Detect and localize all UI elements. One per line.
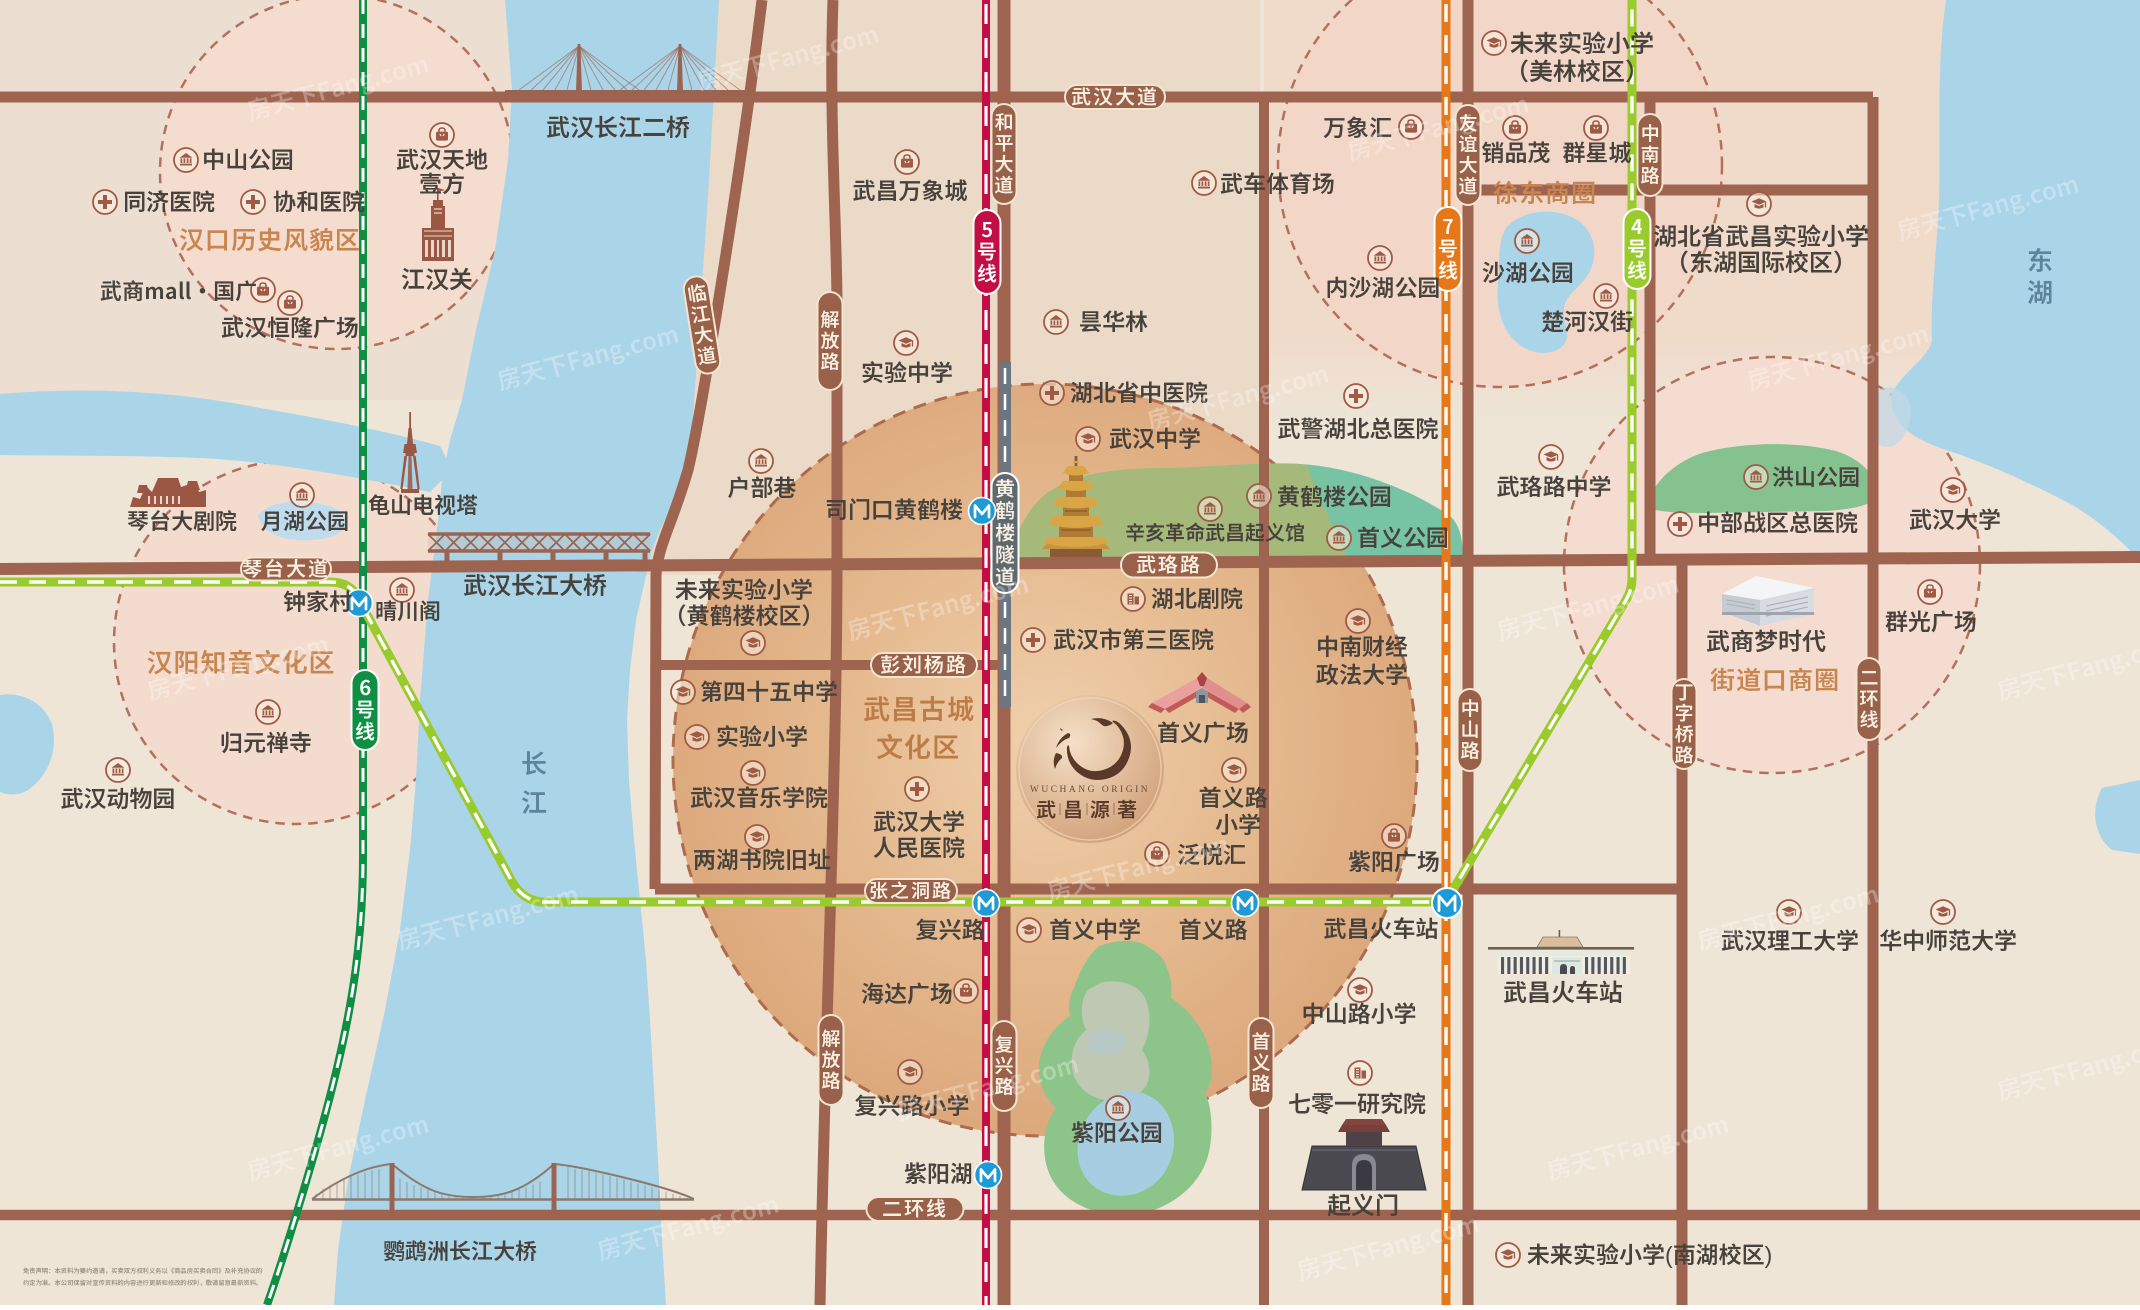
- svg-text:长: 长: [521, 744, 547, 781]
- svg-text:徐东商圈: 徐东商圈: [1493, 174, 1597, 210]
- svg-text:二环线: 二环线: [882, 1193, 948, 1222]
- svg-text:销品茂: 销品茂: [1482, 134, 1551, 168]
- svg-text:和平大道: 和平大道: [994, 108, 1013, 198]
- svg-text:政法大学: 政法大学: [1316, 656, 1408, 690]
- svg-text:紫阳公园: 紫阳公园: [1071, 1114, 1163, 1148]
- svg-text:首义路: 首义路: [1251, 1028, 1270, 1097]
- svg-text:武商梦时代: 武商梦时代: [1706, 622, 1826, 657]
- svg-text:彭刘杨路: 彭刘杨路: [880, 649, 968, 678]
- svg-text:江汉关: 江汉关: [401, 260, 473, 295]
- svg-text:汉口历史风貌区: 汉口历史风貌区: [179, 221, 361, 257]
- svg-text:华中师范大学: 华中师范大学: [1879, 922, 2017, 956]
- svg-text:两湖书院旧址: 两湖书院旧址: [693, 841, 831, 875]
- svg-text:琴台大剧院: 琴台大剧院: [127, 504, 237, 536]
- svg-text:户部巷: 户部巷: [728, 469, 797, 503]
- svg-text:起义门: 起义门: [1327, 1186, 1399, 1221]
- svg-text:武汉长江大桥: 武汉长江大桥: [463, 566, 607, 601]
- svg-text:中南路: 中南路: [1640, 120, 1659, 189]
- svg-text:复兴路: 复兴路: [916, 911, 985, 945]
- svg-text:琴台大道: 琴台大道: [242, 553, 330, 582]
- svg-text:（黄鹤楼校区）: （黄鹤楼校区）: [664, 597, 825, 631]
- svg-text:武珞路中学: 武珞路中学: [1497, 468, 1612, 502]
- svg-text:辛亥革命武昌起义馆: 辛亥革命武昌起义馆: [1125, 517, 1305, 546]
- svg-text:协和医院: 协和医院: [273, 183, 365, 217]
- svg-text:中山路: 中山路: [1460, 695, 1479, 764]
- svg-text:湖北剧院: 湖北剧院: [1151, 580, 1243, 614]
- svg-text:月湖公园: 月湖公园: [261, 504, 349, 536]
- svg-text:武汉音乐学院: 武汉音乐学院: [690, 779, 828, 813]
- svg-text:（东湖国际校区）: （东湖国际校区）: [1665, 243, 1857, 278]
- svg-text:中山路小学: 中山路小学: [1302, 995, 1417, 1029]
- svg-text:武汉大学: 武汉大学: [1909, 501, 2001, 535]
- svg-text:丁字桥路: 丁字桥路: [1674, 678, 1693, 768]
- svg-text:免责声明：本资料为要约邀请，买卖双方权利义务以《商品房买卖合: 免责声明：本资料为要约邀请，买卖双方权利义务以《商品房买卖合同》及补充协议的: [23, 1266, 262, 1275]
- svg-text:武汉大道: 武汉大道: [1071, 81, 1159, 110]
- svg-text:黄鹤楼公园: 黄鹤楼公园: [1277, 478, 1392, 512]
- svg-text:解放路: 解放路: [821, 1025, 840, 1094]
- svg-text:首义路: 首义路: [1179, 911, 1248, 945]
- svg-text:街道口商圈: 街道口商圈: [1710, 661, 1840, 697]
- svg-text:壹方: 壹方: [419, 165, 465, 199]
- svg-text:武昌万象城: 武昌万象城: [853, 172, 968, 206]
- svg-text:湖: 湖: [2027, 273, 2053, 310]
- svg-text:昙华林: 昙华林: [1079, 303, 1148, 337]
- svg-text:归元禅寺: 归元禅寺: [220, 724, 312, 758]
- svg-text:江: 江: [521, 783, 547, 820]
- svg-text:洪山公园: 洪山公园: [1772, 460, 1860, 492]
- svg-text:晴川阁: 晴川阁: [375, 594, 441, 626]
- svg-text:内沙湖公园: 内沙湖公园: [1326, 269, 1441, 303]
- svg-text:紫阳广场: 紫阳广场: [1348, 843, 1440, 877]
- svg-text:钟家村: 钟家村: [283, 583, 352, 617]
- svg-text:武车体育场: 武车体育场: [1220, 165, 1335, 199]
- svg-text:武汉市第三医院: 武汉市第三医院: [1053, 621, 1214, 655]
- svg-text:解放路: 解放路: [820, 306, 839, 375]
- svg-text:张之洞路: 张之洞路: [869, 877, 953, 904]
- svg-text:武昌火车站: 武昌火车站: [1503, 973, 1623, 1008]
- svg-text:紫阳湖: 紫阳湖: [904, 1155, 973, 1189]
- svg-text:龟山电视塔: 龟山电视塔: [368, 488, 478, 520]
- svg-text:武昌源著: 武昌源著: [1036, 794, 1144, 823]
- svg-text:武珞路: 武珞路: [1136, 549, 1202, 578]
- svg-text:鹦鹉洲长江大桥: 鹦鹉洲长江大桥: [383, 1234, 537, 1266]
- svg-text:武汉恒隆广场: 武汉恒隆广场: [221, 309, 359, 343]
- svg-text:七零一研究院: 七零一研究院: [1288, 1085, 1426, 1119]
- svg-text:武昌火车站: 武昌火车站: [1324, 910, 1439, 944]
- svg-text:群光广场: 群光广场: [1885, 603, 1977, 637]
- svg-text:实验中学: 实验中学: [861, 354, 953, 388]
- svg-text:（美林校区）: （美林校区）: [1505, 52, 1649, 87]
- svg-text:实验小学: 实验小学: [716, 718, 808, 752]
- svg-text:未来实验小学(南湖校区): 未来实验小学(南湖校区): [1527, 1236, 1772, 1270]
- svg-text:武汉动物园: 武汉动物园: [61, 780, 176, 814]
- svg-text:群星城: 群星城: [1563, 134, 1632, 168]
- svg-text:首义公园: 首义公园: [1357, 519, 1449, 553]
- svg-text:海达广场: 海达广场: [861, 975, 953, 1009]
- svg-text:武警湖北总医院: 武警湖北总医院: [1278, 410, 1439, 444]
- svg-text:首义广场: 首义广场: [1157, 714, 1249, 748]
- svg-text:武汉长江二桥: 武汉长江二桥: [546, 108, 690, 143]
- svg-text:武昌古城: 武昌古城: [863, 688, 975, 727]
- svg-text:第四十五中学: 第四十五中学: [700, 673, 838, 707]
- svg-text:人民医院: 人民医院: [873, 829, 965, 863]
- svg-text:同济医院: 同济医院: [123, 183, 215, 217]
- svg-text:文化区: 文化区: [876, 726, 960, 765]
- svg-text:中山公园: 中山公园: [202, 141, 294, 175]
- svg-text:楚河汉街: 楚河汉街: [1541, 303, 1633, 337]
- svg-text:约定为准。本公司保留对宣传资料的内容进行更新和修改的权利，敬: 约定为准。本公司保留对宣传资料的内容进行更新和修改的权利，敬请留意最新资料。: [23, 1278, 262, 1287]
- svg-text:中部战区总医院: 中部战区总医院: [1697, 504, 1858, 538]
- svg-text:武商mall·国广: 武商mall·国广: [100, 274, 257, 306]
- svg-text:司门口黄鹤楼: 司门口黄鹤楼: [825, 491, 963, 525]
- svg-text:二环线: 二环线: [1859, 664, 1878, 733]
- svg-text:沙湖公园: 沙湖公园: [1482, 254, 1574, 288]
- svg-text:首义中学: 首义中学: [1049, 911, 1141, 945]
